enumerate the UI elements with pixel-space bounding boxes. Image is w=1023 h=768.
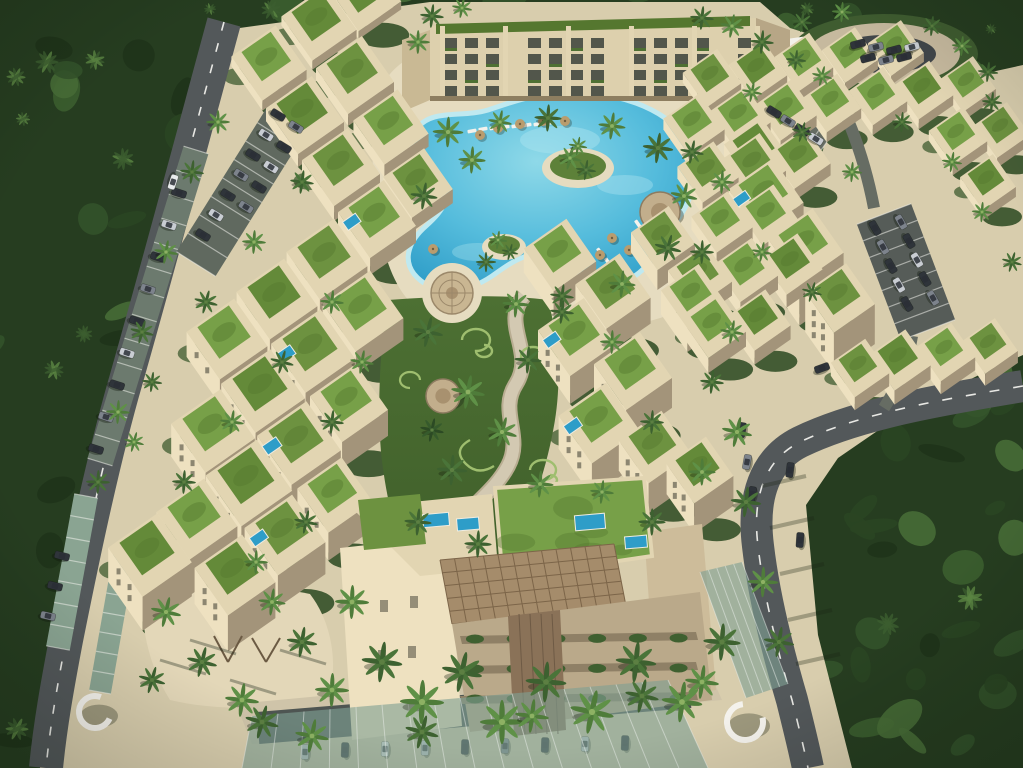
vignette-overlay — [0, 0, 1023, 768]
resort-scene-svg — [0, 0, 1023, 768]
aerial-resort-render — [0, 0, 1023, 768]
